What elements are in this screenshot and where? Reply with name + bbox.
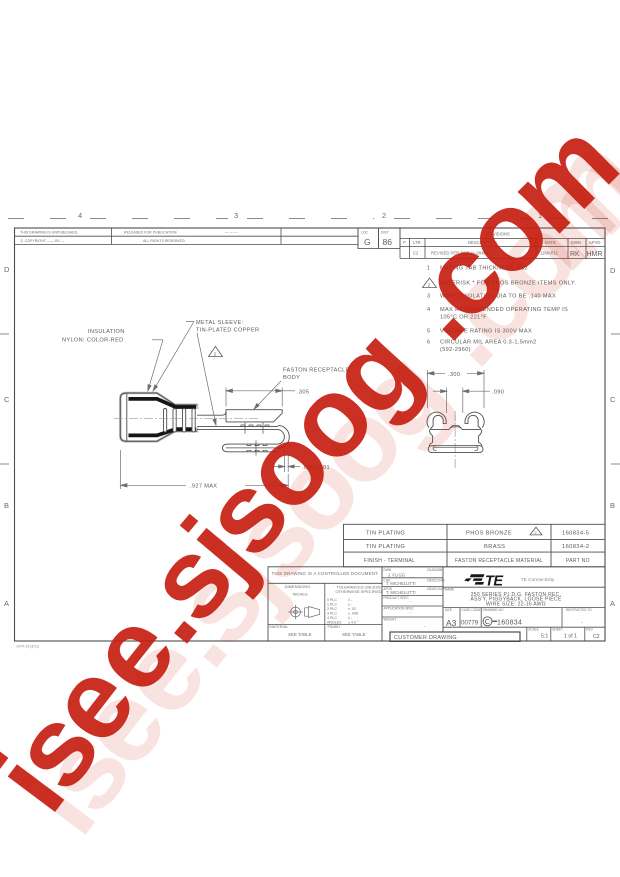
svg-text:DRAWING NO: DRAWING NO: [483, 608, 504, 612]
svg-text:± .02: ± .02: [348, 607, 356, 611]
svg-text:OTHERWISE SPECIFIED:: OTHERWISE SPECIFIED:: [336, 589, 384, 594]
svg-text:P: P: [403, 240, 406, 245]
svg-text:SIZE: SIZE: [445, 608, 452, 612]
svg-text:C: C: [610, 395, 616, 404]
svg-text:2 PLC: 2 PLC: [327, 607, 337, 611]
svg-text:C2: C2: [593, 634, 600, 640]
svg-text:.300: .300: [448, 372, 460, 378]
svg-text:03DEC2009: 03DEC2009: [427, 587, 445, 591]
svg-text:TIN-PLATED COPPER: TIN-PLATED COPPER: [196, 328, 259, 334]
svg-text:5:1: 5:1: [541, 633, 548, 639]
svg-text:T. MICHELUTTI: T. MICHELUTTI: [386, 581, 416, 586]
svg-text:SEE TABLE: SEE TABLE: [342, 632, 366, 637]
svg-text:.090: .090: [492, 390, 504, 396]
svg-text:WIRE SIZE: 22-16 AWG: WIRE SIZE: 22-16 AWG: [486, 602, 546, 608]
svg-text:± -: ± -: [348, 598, 353, 602]
svg-text:SHEET: SHEET: [552, 628, 563, 632]
svg-text:± -: ± -: [348, 616, 353, 620]
svg-text:00779: 00779: [461, 620, 479, 627]
svg-text:TIN PLATING: TIN PLATING: [366, 530, 405, 536]
svg-text:BRASS: BRASS: [484, 544, 505, 550]
svg-text:-: -: [424, 624, 426, 629]
svg-text:TIN PLATING: TIN PLATING: [366, 544, 405, 550]
svg-text:DWN: DWN: [384, 568, 392, 572]
svg-text:C: C: [485, 617, 490, 626]
svg-text:CAGE CODE: CAGE CODE: [462, 608, 481, 612]
svg-text:160834-2: 160834-2: [562, 544, 589, 550]
svg-text:1 of 1: 1 of 1: [564, 633, 577, 639]
svg-text:160834: 160834: [497, 619, 522, 626]
svg-text:86: 86: [383, 237, 393, 247]
svg-text:RELEASED FOR PUBLICATION: RELEASED FOR PUBLICATION: [124, 231, 177, 235]
svg-text:1 PLC: 1 PLC: [327, 603, 337, 607]
svg-text:J. FLIGG: J. FLIGG: [388, 572, 405, 577]
svg-text:CUSTOMER DRAWING: CUSTOMER DRAWING: [394, 635, 457, 641]
svg-text:SCALE: SCALE: [528, 628, 538, 632]
svg-text:NYLON: COLOR-RED: NYLON: COLOR-RED: [62, 338, 124, 344]
svg-text:2JUN2008: 2JUN2008: [427, 568, 442, 572]
svg-text:B: B: [610, 501, 615, 510]
svg-text:RESTRICTED TO: RESTRICTED TO: [566, 608, 592, 612]
svg-text:Ⓒ COPYRIGHT —— BY —: Ⓒ COPYRIGHT —— BY —: [20, 238, 65, 243]
svg-text:FASTON RECEPTACLE MATERIAL: FASTON RECEPTACLE MATERIAL: [455, 558, 543, 564]
svg-text:± .008: ± .008: [348, 612, 358, 616]
svg-text:-: -: [581, 620, 583, 626]
svg-text:FINISH - TERMINAL: FINISH - TERMINAL: [364, 558, 415, 564]
svg-text:— — —: — — —: [225, 231, 238, 235]
svg-text:INSULATION: INSULATION: [88, 329, 125, 335]
svg-text:± 4.0 °: ± 4.0 °: [348, 621, 359, 625]
svg-text:DIST: DIST: [381, 231, 389, 235]
svg-text:2: 2: [382, 211, 386, 220]
svg-text:4 PLC: 4 PLC: [327, 616, 337, 620]
svg-text:NAME: NAME: [445, 588, 454, 592]
svg-text:D: D: [4, 265, 10, 274]
svg-text:A: A: [610, 599, 615, 608]
svg-text:ANGLES: ANGLES: [327, 621, 342, 625]
svg-text:METAL SLEEVE:: METAL SLEEVE:: [196, 320, 244, 326]
svg-text:5: 5: [427, 329, 430, 335]
svg-text:-: -: [410, 610, 412, 615]
svg-text:SEE TABLE: SEE TABLE: [288, 632, 312, 637]
svg-text:-: -: [410, 599, 412, 604]
svg-text:2: 2: [214, 351, 217, 356]
svg-text:0 PLC: 0 PLC: [327, 598, 337, 602]
svg-text:A3: A3: [446, 618, 457, 628]
svg-text:LOC: LOC: [361, 231, 369, 235]
svg-text:ALL RIGHTS RESERVED.: ALL RIGHTS RESERVED.: [143, 239, 186, 243]
svg-text:TE Connectivity: TE Connectivity: [521, 577, 555, 583]
svg-text:C: C: [4, 395, 10, 404]
svg-text:A: A: [4, 599, 9, 608]
svg-text:PHOS BRONZE: PHOS BRONZE: [466, 530, 512, 536]
svg-text:THIS DRAWING IS UNPUBLISHED.: THIS DRAWING IS UNPUBLISHED.: [20, 231, 78, 235]
svg-text:4: 4: [78, 211, 82, 220]
svg-text:TE: TE: [485, 574, 504, 590]
svg-text:03DEC2009: 03DEC2009: [427, 578, 445, 582]
svg-text:± -: ± -: [348, 603, 353, 607]
svg-text:B: B: [4, 501, 9, 510]
svg-text:160834-5: 160834-5: [562, 530, 589, 536]
svg-text:2: 2: [534, 530, 537, 535]
svg-text:REV: REV: [586, 628, 593, 632]
svg-text:G: G: [364, 237, 371, 247]
svg-text:WEIGHT: WEIGHT: [384, 617, 397, 621]
svg-text:PART NO: PART NO: [566, 558, 590, 564]
svg-text:1470-19 (3/11): 1470-19 (3/11): [16, 645, 39, 649]
svg-text:3 PLC: 3 PLC: [327, 612, 337, 616]
svg-text:6: 6: [427, 340, 430, 346]
svg-text:PRODUCT SPEC: PRODUCT SPEC: [384, 596, 410, 600]
svg-text:FINISH: FINISH: [328, 625, 341, 629]
svg-text:3: 3: [234, 211, 238, 220]
svg-text:T. MICHELUTTI: T. MICHELUTTI: [386, 590, 416, 595]
